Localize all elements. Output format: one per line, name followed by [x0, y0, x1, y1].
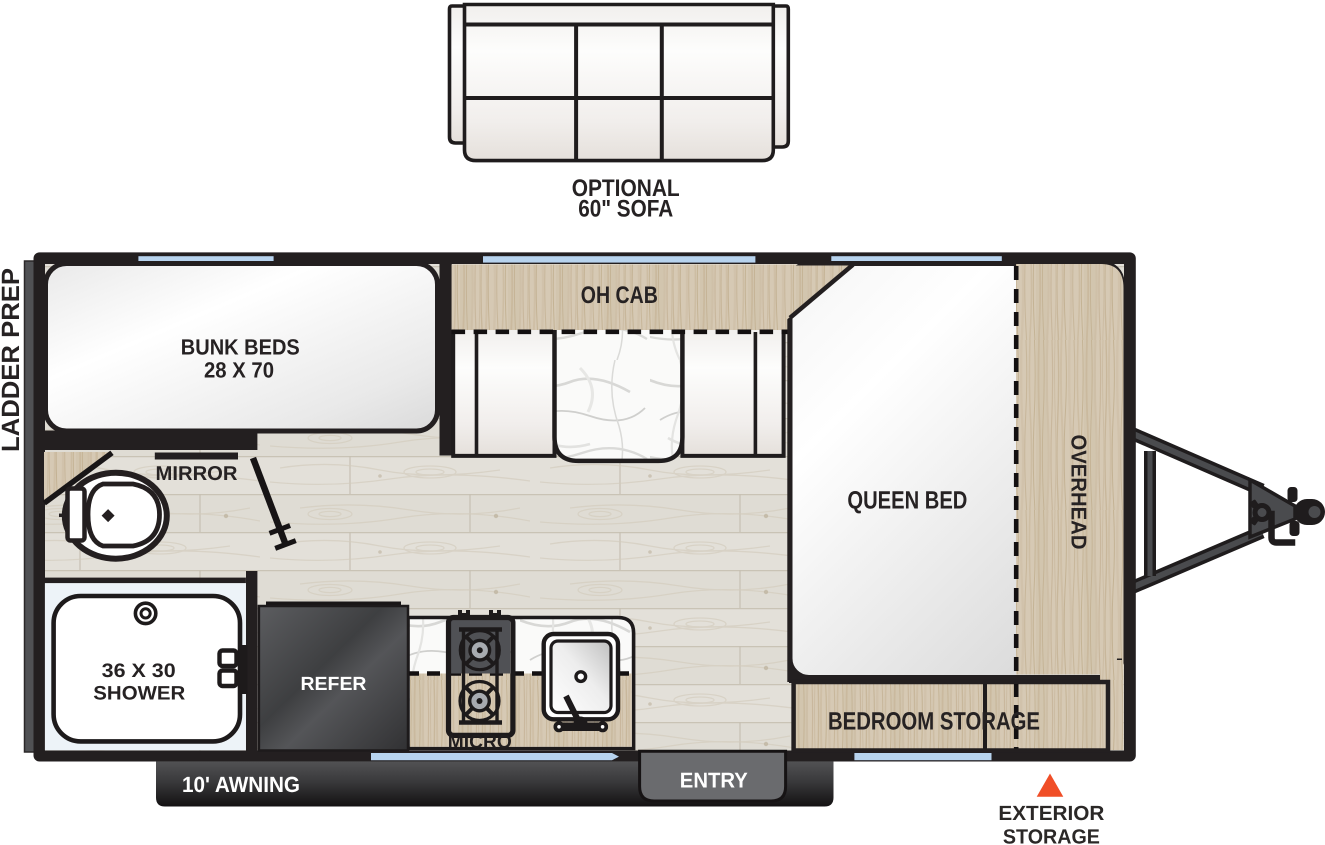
svg-text:SHOWER: SHOWER: [93, 683, 185, 705]
svg-text:36 X 30: 36 X 30: [102, 660, 176, 682]
svg-text:BUNK BEDS: BUNK BEDS: [181, 334, 300, 359]
svg-text:REFER: REFER: [301, 674, 367, 695]
svg-text:LADDER PREP: LADDER PREP: [0, 268, 25, 452]
svg-text:MICRO: MICRO: [448, 731, 512, 753]
svg-text:ENTRY: ENTRY: [680, 768, 748, 792]
svg-text:60" SOFA: 60" SOFA: [578, 196, 673, 223]
svg-text:MIRROR: MIRROR: [156, 463, 239, 485]
svg-text:OH CAB: OH CAB: [581, 282, 658, 309]
svg-text:EXTERIOR: EXTERIOR: [998, 802, 1104, 825]
svg-text:STORAGE: STORAGE: [1003, 825, 1100, 845]
svg-text:BEDROOM STORAGE: BEDROOM STORAGE: [828, 707, 1040, 735]
svg-text:OVERHEAD: OVERHEAD: [1067, 435, 1091, 550]
svg-text:10' AWNING: 10' AWNING: [182, 772, 300, 797]
svg-text:QUEEN BED: QUEEN BED: [847, 487, 967, 515]
svg-text:28 X 70: 28 X 70: [204, 357, 274, 382]
